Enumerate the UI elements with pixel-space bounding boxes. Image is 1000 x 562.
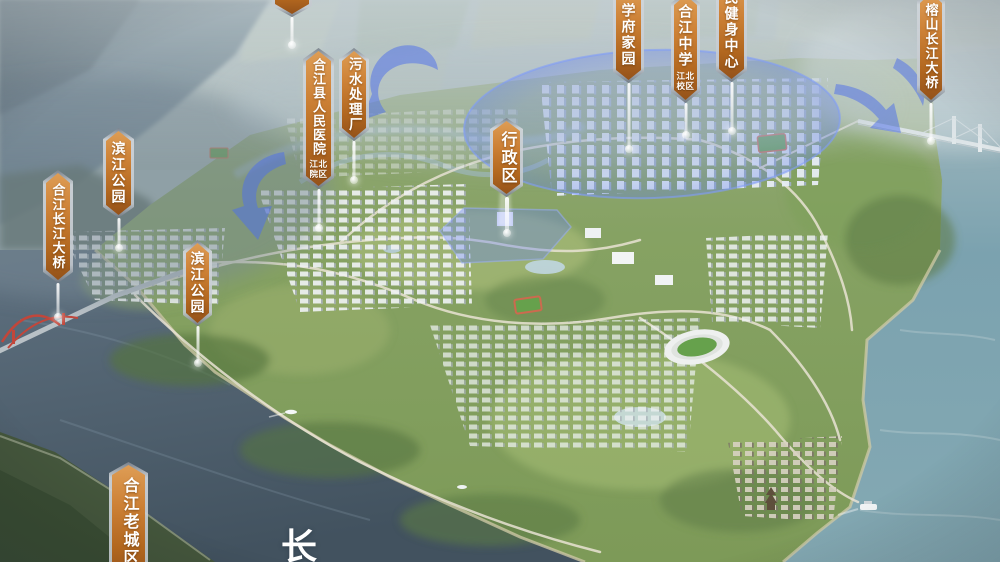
marker-stick — [57, 283, 60, 315]
marker-banner: 滨江公园 — [183, 240, 212, 326]
marker-label: 污水处理厂 — [347, 57, 361, 132]
marker-dot — [503, 229, 511, 237]
marker-dot — [625, 145, 633, 153]
marker-banner: 学府家园 — [613, 0, 644, 83]
river-name-text: 长 — [281, 518, 321, 562]
marker-hejiang-county-hospital[interactable]: 合江县人民医院 江北院区 — [303, 48, 334, 189]
marker-sha[interactable]: 沙 — [272, 0, 312, 17]
marker-stick — [117, 218, 120, 246]
marker-banner: 污水处理厂 — [339, 48, 369, 141]
marker-banner: 行政区 — [490, 118, 523, 197]
marker-xuefu-jiayuan[interactable]: 学府家园 — [613, 0, 644, 83]
marker-banner: 滨江公园 — [103, 128, 134, 218]
marker-dot — [115, 244, 123, 252]
marker-banner: 合江长江大桥 — [43, 170, 73, 283]
marker-label: 合江县人民医院 — [312, 58, 325, 156]
marker-label: 合江老城区 — [121, 477, 137, 562]
marker-hejiang-old-town[interactable]: 合江老城区 — [109, 462, 148, 562]
marker-binjiang-park-north[interactable]: 滨江公园 — [103, 128, 134, 218]
marker-label: 行政区 — [499, 131, 515, 185]
marker-banner: 合江县人民医院 江北院区 — [303, 48, 334, 189]
aerial-masterplan-screenshot: 沙 滨江公园 合江长江大桥 滨江公园 合江县人民医院 江北院区 — [0, 0, 1000, 562]
marker-dot — [682, 131, 690, 139]
marker-stick — [353, 141, 356, 178]
marker-label: 滨江公园 — [191, 251, 205, 315]
marker-stick — [317, 189, 320, 226]
marker-stick — [196, 326, 199, 361]
marker-banner: 合江老城区 — [109, 462, 148, 562]
marker-administrative-district[interactable]: 行政区 — [490, 118, 523, 197]
marker-stick — [730, 82, 733, 129]
marker-citizens-fitness-center[interactable]: 民健身中心 — [716, 0, 747, 82]
marker-sublabel: 江北院区 — [309, 159, 329, 179]
marker-stick — [291, 17, 294, 43]
marker-banner: 民健身中心 — [716, 0, 747, 82]
marker-label: 合江长江大桥 — [52, 183, 65, 270]
arrow-top-center — [362, 45, 438, 120]
marker-stick — [627, 83, 630, 147]
marker-rongshan-yangtze-bridge[interactable]: 榕山长江大桥 — [917, 0, 945, 103]
marker-dot — [194, 359, 202, 367]
marker-banner: 榕山长江大桥 — [917, 0, 945, 103]
arrow-left — [232, 152, 286, 240]
marker-binjiang-park-south[interactable]: 滨江公园 — [183, 240, 212, 326]
marker-label: 学府家园 — [622, 3, 636, 67]
marker-stick — [505, 197, 509, 231]
marker-banner: 沙 — [272, 0, 312, 17]
marker-dot — [927, 137, 935, 145]
marker-hejiang-yangtze-bridge[interactable]: 合江长江大桥 — [43, 170, 73, 283]
marker-label: 民健身中心 — [725, 0, 739, 70]
marker-dot — [315, 224, 323, 232]
marker-sewage-treatment-plant[interactable]: 污水处理厂 — [339, 48, 369, 141]
marker-label: 滨江公园 — [112, 141, 126, 205]
annotation-overlay — [0, 0, 1000, 562]
marker-banner: 合江中学 江北校区 — [671, 0, 700, 103]
marker-sublabel: 江北校区 — [676, 71, 696, 91]
marker-dot — [350, 176, 358, 184]
marker-label: 合江中学 — [679, 4, 693, 68]
marker-label: 榕山长江大桥 — [925, 3, 938, 90]
marker-dot — [54, 313, 62, 321]
marker-hejiang-middle-school[interactable]: 合江中学 江北校区 — [671, 0, 700, 103]
marker-stick — [930, 103, 933, 139]
arrow-right — [834, 84, 901, 133]
marker-dot — [288, 41, 296, 49]
marker-stick — [684, 103, 687, 133]
marker-dot — [728, 127, 736, 135]
